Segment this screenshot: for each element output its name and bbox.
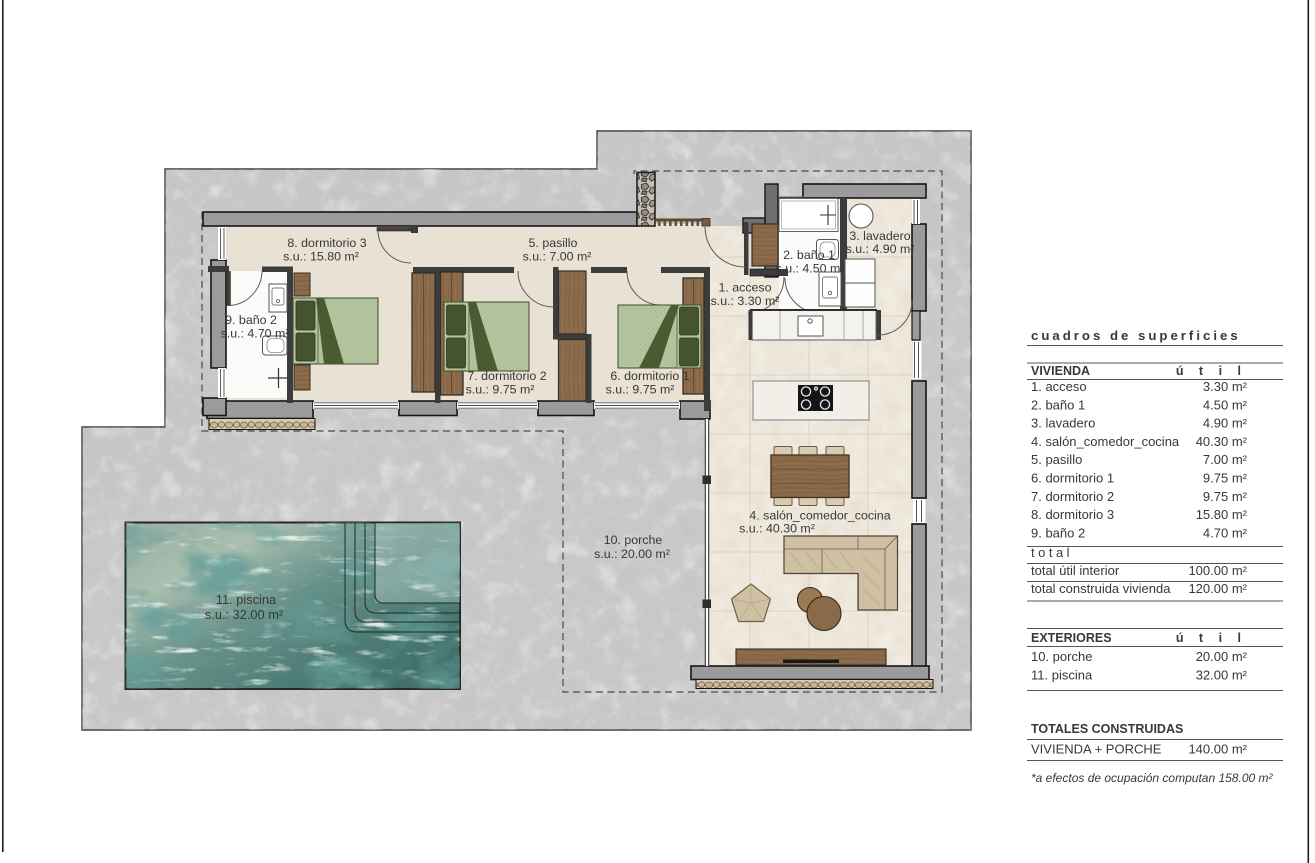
svg-text:VIVIENDA: VIVIENDA <box>1031 364 1090 378</box>
svg-text:3.30 m²: 3.30 m² <box>1203 379 1248 394</box>
svg-text:100.00 m²: 100.00 m² <box>1188 563 1247 578</box>
svg-text:9. baño 2: 9. baño 2 <box>1031 525 1085 540</box>
svg-text:7. dormitorio 2: 7. dormitorio 2 <box>467 369 546 383</box>
svg-text:2. baño 1: 2. baño 1 <box>783 248 835 262</box>
svg-text:5. pasillo: 5. pasillo <box>1031 452 1082 467</box>
svg-text:total útil interior: total útil interior <box>1031 563 1120 578</box>
svg-text:11. piscina: 11. piscina <box>216 592 277 607</box>
svg-text:32.00 m²: 32.00 m² <box>1196 668 1248 683</box>
svg-text:total: total <box>1031 545 1073 560</box>
svg-text:4.90 m²: 4.90 m² <box>1203 416 1248 431</box>
svg-text:120.00 m²: 120.00 m² <box>1188 581 1247 596</box>
svg-text:ú t i l: ú t i l <box>1176 631 1247 645</box>
svg-text:8. dormitorio 3: 8. dormitorio 3 <box>1031 507 1114 522</box>
svg-text:4.50 m²: 4.50 m² <box>1203 397 1248 412</box>
svg-text:total construida vivienda: total construida vivienda <box>1031 581 1171 596</box>
svg-text:1. acceso: 1. acceso <box>1031 379 1087 394</box>
svg-text:9.75 m²: 9.75 m² <box>1203 471 1248 486</box>
svg-text:s.u.: 32.00 m²: s.u.: 32.00 m² <box>205 607 284 622</box>
svg-text:3. lavadero: 3. lavadero <box>1031 416 1095 431</box>
svg-text:s.u.: 9.75 m²: s.u.: 9.75 m² <box>466 383 535 397</box>
svg-text:4. salón_comedor_cocina: 4. salón_comedor_cocina <box>1031 434 1180 449</box>
svg-text:EXTERIORES: EXTERIORES <box>1031 631 1112 645</box>
svg-text:*a efectos de ocupación comput: *a efectos de ocupación computan 158.00 … <box>1031 771 1273 785</box>
svg-text:8. dormitorio 3: 8. dormitorio 3 <box>287 236 366 250</box>
svg-text:s.u.: 4.90 m²: s.u.: 4.90 m² <box>846 242 915 256</box>
svg-text:11. piscina: 11. piscina <box>1031 668 1093 683</box>
svg-text:s.u.: 40.30 m²: s.u.: 40.30 m² <box>739 522 815 536</box>
svg-text:1. acceso: 1. acceso <box>718 281 771 295</box>
svg-text:s.u.: 4.50 m²: s.u.: 4.50 m² <box>776 262 845 276</box>
svg-text:9.75 m²: 9.75 m² <box>1203 489 1248 504</box>
svg-text:VIVIENDA + PORCHE: VIVIENDA + PORCHE <box>1031 742 1162 757</box>
svg-text:s.u.: 9.75 m²: s.u.: 9.75 m² <box>606 383 675 397</box>
svg-text:2. baño 1: 2. baño 1 <box>1031 397 1085 412</box>
svg-text:20.00 m²: 20.00 m² <box>1196 649 1248 664</box>
svg-text:4. salón_comedor_cocina: 4. salón_comedor_cocina <box>749 509 890 523</box>
svg-text:s.u.: 4.70 m²: s.u.: 4.70 m² <box>221 327 290 341</box>
svg-text:5. pasillo: 5. pasillo <box>529 236 578 250</box>
svg-text:7. dormitorio 2: 7. dormitorio 2 <box>1031 489 1114 504</box>
svg-text:s.u.: 7.00 m²: s.u.: 7.00 m² <box>523 250 592 264</box>
svg-text:ú t i l: ú t i l <box>1176 364 1247 378</box>
svg-text:s.u.: 3.30 m²: s.u.: 3.30 m² <box>711 294 780 308</box>
svg-text:TOTALES CONSTRUIDAS: TOTALES CONSTRUIDAS <box>1031 722 1183 736</box>
svg-text:7.00 m²: 7.00 m² <box>1203 452 1248 467</box>
svg-text:3. lavadero: 3. lavadero <box>849 229 910 243</box>
svg-text:4.70 m²: 4.70 m² <box>1203 525 1248 540</box>
svg-text:cuadros de superficies: cuadros de superficies <box>1031 328 1241 343</box>
svg-text:140.00 m²: 140.00 m² <box>1188 742 1247 757</box>
svg-text:6. dormitorio 1: 6. dormitorio 1 <box>610 369 689 383</box>
svg-text:9. baño 2: 9. baño 2 <box>225 313 277 327</box>
svg-text:s.u.: 20.00 m²: s.u.: 20.00 m² <box>594 547 670 561</box>
svg-text:40.30 m²: 40.30 m² <box>1196 434 1248 449</box>
svg-text:15.80 m²: 15.80 m² <box>1196 507 1248 522</box>
svg-text:s.u.: 15.80 m²: s.u.: 15.80 m² <box>283 250 359 264</box>
svg-text:10. porche: 10. porche <box>604 533 663 547</box>
svg-text:10. porche: 10. porche <box>1031 649 1092 664</box>
svg-text:6. dormitorio 1: 6. dormitorio 1 <box>1031 471 1114 486</box>
